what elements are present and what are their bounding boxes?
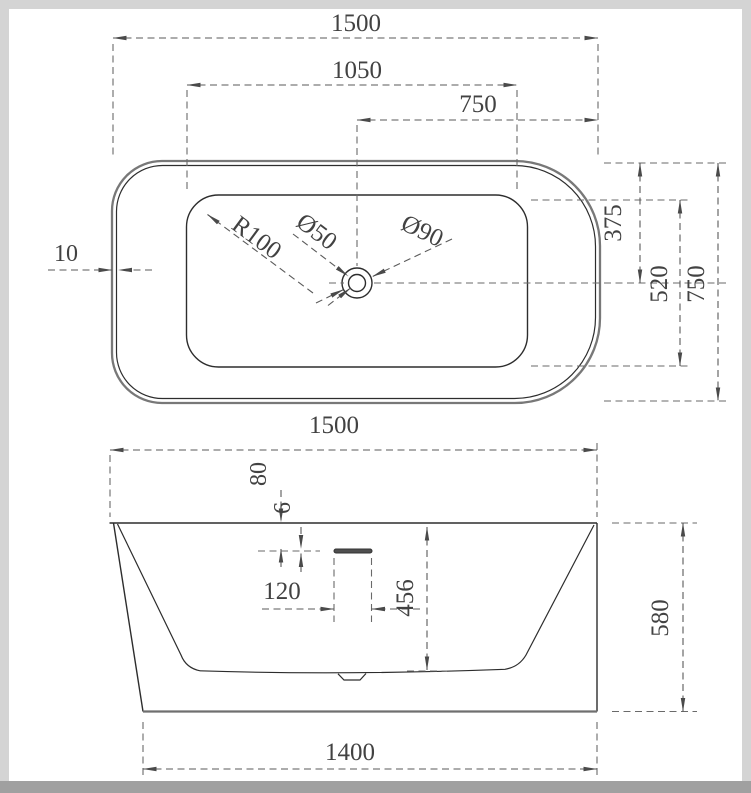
dim-overflow-slot-width-label: 120 (263, 578, 301, 605)
drain-diameter-label: Ø50 (291, 208, 342, 255)
dim-front-length-label: 1500 (309, 412, 359, 439)
technical-drawing-page: 1500 1050 750 10 375 520 750 R100 Ø50 Ø9… (0, 0, 751, 793)
front-view-drain-outline (338, 674, 366, 681)
dim-base-length-label: 1400 (325, 739, 375, 766)
drain-circle-inner (349, 275, 366, 292)
dim-drain-from-back-label: 375 (600, 204, 627, 242)
dim-top-drain-offset-label: 750 (459, 91, 497, 118)
front-view-inner-left-wall (118, 524, 201, 671)
dim-top-inner-width-label: 520 (646, 265, 673, 303)
dim-overflow-slot-height-label: 6 (270, 502, 296, 514)
waste-diameter-label: Ø90 (397, 210, 447, 253)
top-view-rim-inner-outline (117, 166, 596, 399)
dim-top-length-label: 1500 (331, 10, 381, 37)
dim-height-label: 580 (647, 599, 674, 637)
top-view: 1500 1050 750 10 375 520 750 R100 Ø50 Ø9… (48, 10, 728, 403)
front-view-left-wall (114, 523, 144, 712)
dim-inner-depth-label: 456 (392, 579, 419, 617)
dim-wall-thickness-label: 10 (54, 241, 78, 267)
dim-overflow-from-rim-label: 80 (246, 462, 272, 486)
dim-top-width-label: 750 (683, 265, 710, 303)
drain-circle-outer (342, 268, 372, 298)
corner-radius-label: R100 (227, 211, 287, 265)
dim-top-inner-length-label: 1050 (332, 57, 382, 84)
overflow-slot (334, 549, 372, 553)
front-view: 1500 80 6 120 456 580 1400 (110, 412, 698, 776)
bathtub-technical-drawing: 1500 1050 750 10 375 520 750 R100 Ø50 Ø9… (0, 0, 751, 793)
